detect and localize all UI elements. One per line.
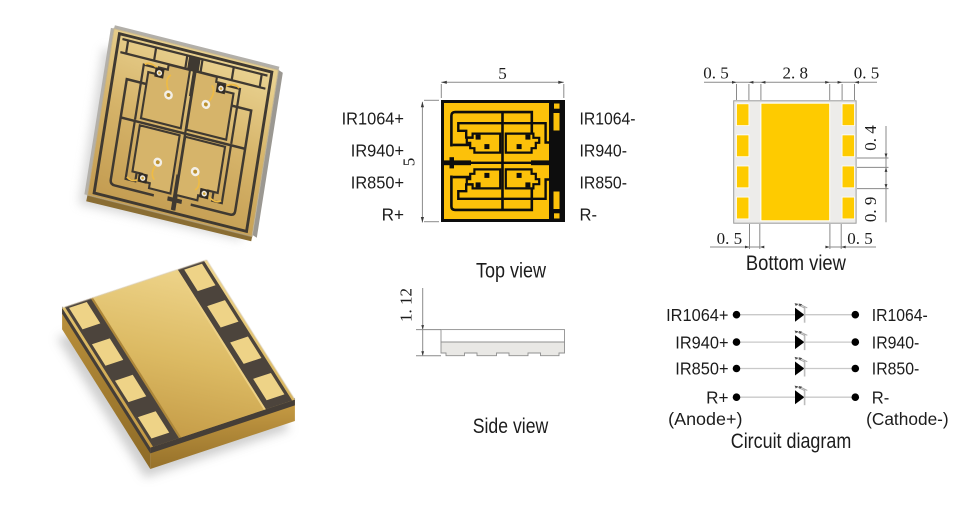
svg-text:0. 5: 0. 5 xyxy=(717,229,743,248)
svg-text:0. 9: 0. 9 xyxy=(861,197,880,223)
svg-text:IR1064-: IR1064- xyxy=(580,109,636,129)
svg-text:Side view: Side view xyxy=(473,414,549,438)
svg-text:(Anode+): (Anode+) xyxy=(668,409,742,429)
svg-text:(Cathode-): (Cathode-) xyxy=(866,409,949,429)
svg-text:0. 5: 0. 5 xyxy=(854,64,880,83)
svg-text:IR850+: IR850+ xyxy=(675,359,728,379)
svg-text:5: 5 xyxy=(498,64,507,83)
svg-text:IR1064+: IR1064+ xyxy=(342,109,404,129)
svg-text:IR940-: IR940- xyxy=(872,332,920,352)
svg-text:R+: R+ xyxy=(706,387,728,407)
svg-text:R-: R- xyxy=(872,387,890,407)
svg-text:0. 5: 0. 5 xyxy=(703,64,729,83)
svg-text:0. 4: 0. 4 xyxy=(861,125,880,151)
svg-text:IR1064-: IR1064- xyxy=(872,305,928,325)
svg-text:IR940+: IR940+ xyxy=(675,332,728,352)
svg-text:Circuit diagram: Circuit diagram xyxy=(731,429,852,453)
svg-text:IR1064+: IR1064+ xyxy=(666,305,728,325)
svg-text:1. 12: 1. 12 xyxy=(397,288,416,322)
svg-text:R-: R- xyxy=(580,205,598,225)
svg-text:IR850-: IR850- xyxy=(872,359,920,379)
svg-text:Bottom view: Bottom view xyxy=(746,251,846,275)
svg-text:2. 8: 2. 8 xyxy=(782,64,808,83)
svg-text:IR940+: IR940+ xyxy=(351,141,404,161)
svg-text:Top view: Top view xyxy=(476,259,546,283)
svg-text:IR940-: IR940- xyxy=(580,141,628,161)
svg-text:R+: R+ xyxy=(382,205,404,225)
svg-text:IR850+: IR850+ xyxy=(351,173,404,193)
svg-text:IR850-: IR850- xyxy=(580,173,628,193)
svg-text:0. 5: 0. 5 xyxy=(847,229,873,248)
